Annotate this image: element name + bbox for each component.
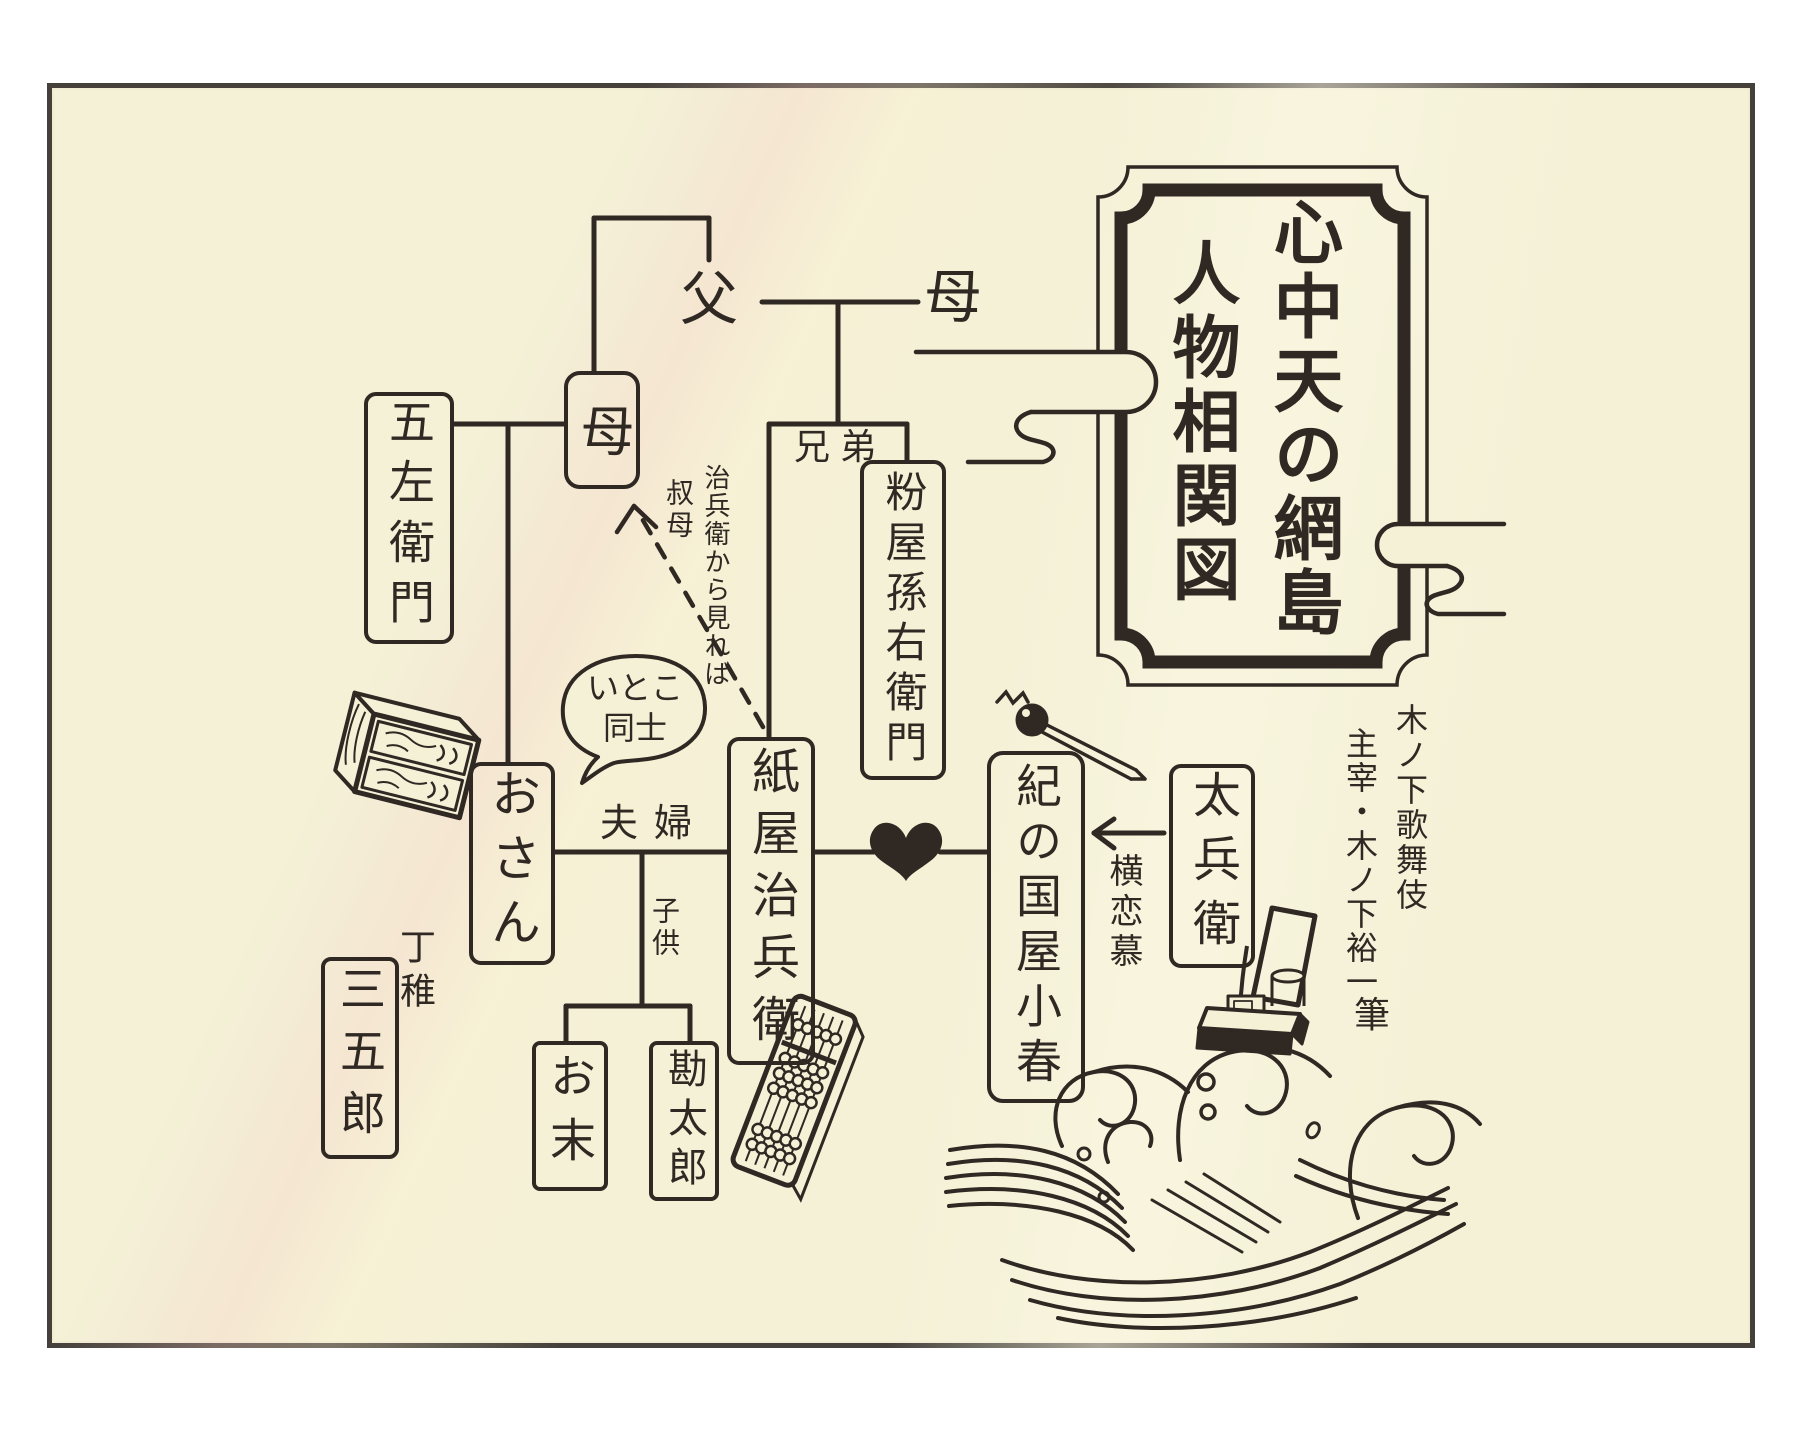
person-box-magoemon: 粉屋孫右衛門 (860, 460, 946, 780)
signature-brush: 筆 (1354, 998, 1390, 1034)
relation-label-kodomo: 子供 (650, 896, 678, 962)
aunt-note: 治兵衛から見れば (702, 464, 728, 696)
person-box-kantaro: 勘太郎 (649, 1041, 719, 1201)
cloud-icon-right (1377, 524, 1504, 614)
heart-icon (870, 823, 942, 881)
relation-label-fuufu: 夫婦 (600, 804, 708, 842)
rival-love-arrow (1094, 819, 1164, 848)
signature-author: 主宰・木ノ下裕一 (1344, 727, 1376, 1003)
person-label-mother-top: 母 (924, 268, 982, 326)
relation-label-itoko: いとこ 同士 (568, 666, 702, 750)
signature-company: 木ノ下歌舞伎 (1394, 703, 1426, 917)
person-box-jihei: 紙屋治兵衛 (727, 737, 815, 1065)
person-label-father: 父 (680, 270, 738, 328)
tansu-chest-icon (331, 693, 482, 818)
person-box-osan: おさん (469, 762, 555, 965)
page-title-sub: 人物相関図 (1166, 238, 1234, 618)
page-title-main: 心中天の網島 (1268, 196, 1338, 648)
person-box-koharu: 紀の国屋小春 (987, 751, 1085, 1103)
person-box-tahei: 太兵衛 (1169, 764, 1255, 968)
person-box-gozaemon: 五左衛門 (364, 392, 454, 644)
aunt-note-sub: 叔母 (664, 478, 692, 548)
person-box-sangoro: 三五郎 (321, 957, 399, 1159)
relation-label-yokorenbo: 横恋慕 (1106, 853, 1140, 977)
person-box-osue: お末 (532, 1041, 608, 1191)
relation-label-decchi: 丁稚 (396, 928, 432, 1020)
scanned-drawing-page: 心中天の網島 人物相関図 父 母 兄弟 五左衛門 母 治兵衛から見れば 叔母 粉… (0, 0, 1800, 1440)
person-box-osan-mother: 母 (564, 371, 640, 489)
